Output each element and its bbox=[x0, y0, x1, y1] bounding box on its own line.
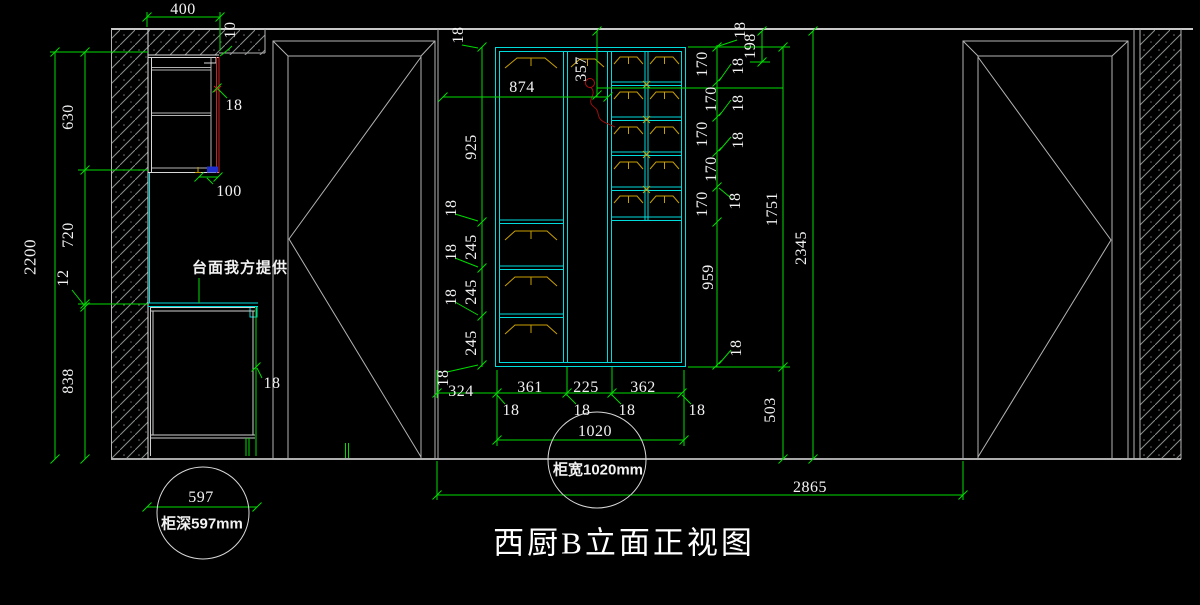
hinge-marks bbox=[505, 57, 679, 334]
left-door bbox=[273, 41, 435, 459]
dim-10: 10 bbox=[223, 22, 239, 39]
dim-2865: 2865 bbox=[793, 480, 827, 496]
countertop-note: 台面我方提供 bbox=[192, 261, 288, 276]
dim-18-upper-cabinet: 18 bbox=[226, 98, 243, 114]
blue-marker bbox=[207, 167, 218, 173]
dim-18-shelf: 18 bbox=[444, 289, 460, 306]
dim-12: 12 bbox=[56, 270, 72, 287]
dim-357: 357 bbox=[574, 56, 590, 82]
dim-362: 362 bbox=[630, 380, 656, 396]
dim-18-grid: 18 bbox=[731, 95, 747, 112]
red-panel-line bbox=[214, 57, 221, 173]
dim-597: 597 bbox=[188, 490, 214, 506]
dim-874: 874 bbox=[509, 80, 535, 96]
dim-245: 245 bbox=[464, 279, 480, 305]
dim-18-grid: 18 bbox=[728, 193, 744, 210]
dim-1020: 1020 bbox=[578, 424, 612, 440]
dim-100: 100 bbox=[216, 184, 242, 200]
dim-324: 324 bbox=[448, 384, 474, 400]
dim-838: 838 bbox=[61, 368, 77, 394]
dim-720: 720 bbox=[61, 222, 77, 248]
dim-245: 245 bbox=[464, 234, 480, 260]
dim-18-panel: 18 bbox=[503, 403, 520, 419]
dim-925: 925 bbox=[464, 134, 480, 160]
dim-18-grid: 18 bbox=[731, 58, 747, 75]
dim-18-cab-top: 18 bbox=[451, 27, 467, 44]
dim-18-panel: 18 bbox=[689, 403, 706, 419]
drawing-linework bbox=[0, 0, 1200, 605]
dim-2345: 2345 bbox=[794, 231, 810, 265]
dim-198: 198 bbox=[743, 33, 759, 59]
dim-2200: 2200 bbox=[22, 239, 39, 275]
drawing-title: 西厨B立面正视图 bbox=[493, 528, 755, 559]
dim-18-grid: 18 bbox=[731, 132, 747, 149]
dim-361: 361 bbox=[517, 380, 543, 396]
dim-630: 630 bbox=[61, 104, 77, 130]
dim-245: 245 bbox=[464, 330, 480, 356]
dim-170: 170 bbox=[695, 191, 711, 217]
right-door bbox=[963, 41, 1128, 459]
upper-wall-cabinet bbox=[148, 58, 219, 173]
countertop bbox=[148, 303, 258, 317]
dim-18-shelf: 18 bbox=[444, 200, 460, 217]
cabinet-depth-callout: 柜深597mm bbox=[161, 517, 243, 532]
dim-18-panel: 18 bbox=[619, 403, 636, 419]
dim-225: 225 bbox=[573, 380, 599, 396]
dim-959: 959 bbox=[701, 264, 717, 290]
dim-18-shelf: 18 bbox=[444, 244, 460, 261]
dim-170: 170 bbox=[704, 86, 720, 112]
dim-170: 170 bbox=[704, 156, 720, 182]
dim-18-panel: 18 bbox=[574, 403, 591, 419]
base-cabinet bbox=[150, 308, 255, 457]
cabinet-width-callout: 柜宽1020mm bbox=[553, 463, 643, 478]
red-revision-leader bbox=[586, 79, 616, 128]
cad-elevation-drawing: 400 10 18 100 2200 630 720 12 838 台面我方提供… bbox=[0, 0, 1200, 605]
dim-503: 503 bbox=[763, 397, 779, 423]
dim-1751: 1751 bbox=[765, 192, 781, 226]
dim-170: 170 bbox=[695, 51, 711, 77]
base-cabinet-green-edges bbox=[246, 307, 349, 458]
dim-18-grid: 18 bbox=[729, 340, 745, 357]
dim-18-base-cabinet: 18 bbox=[264, 376, 281, 392]
dim-170: 170 bbox=[695, 121, 711, 147]
dim-400: 400 bbox=[170, 2, 196, 18]
